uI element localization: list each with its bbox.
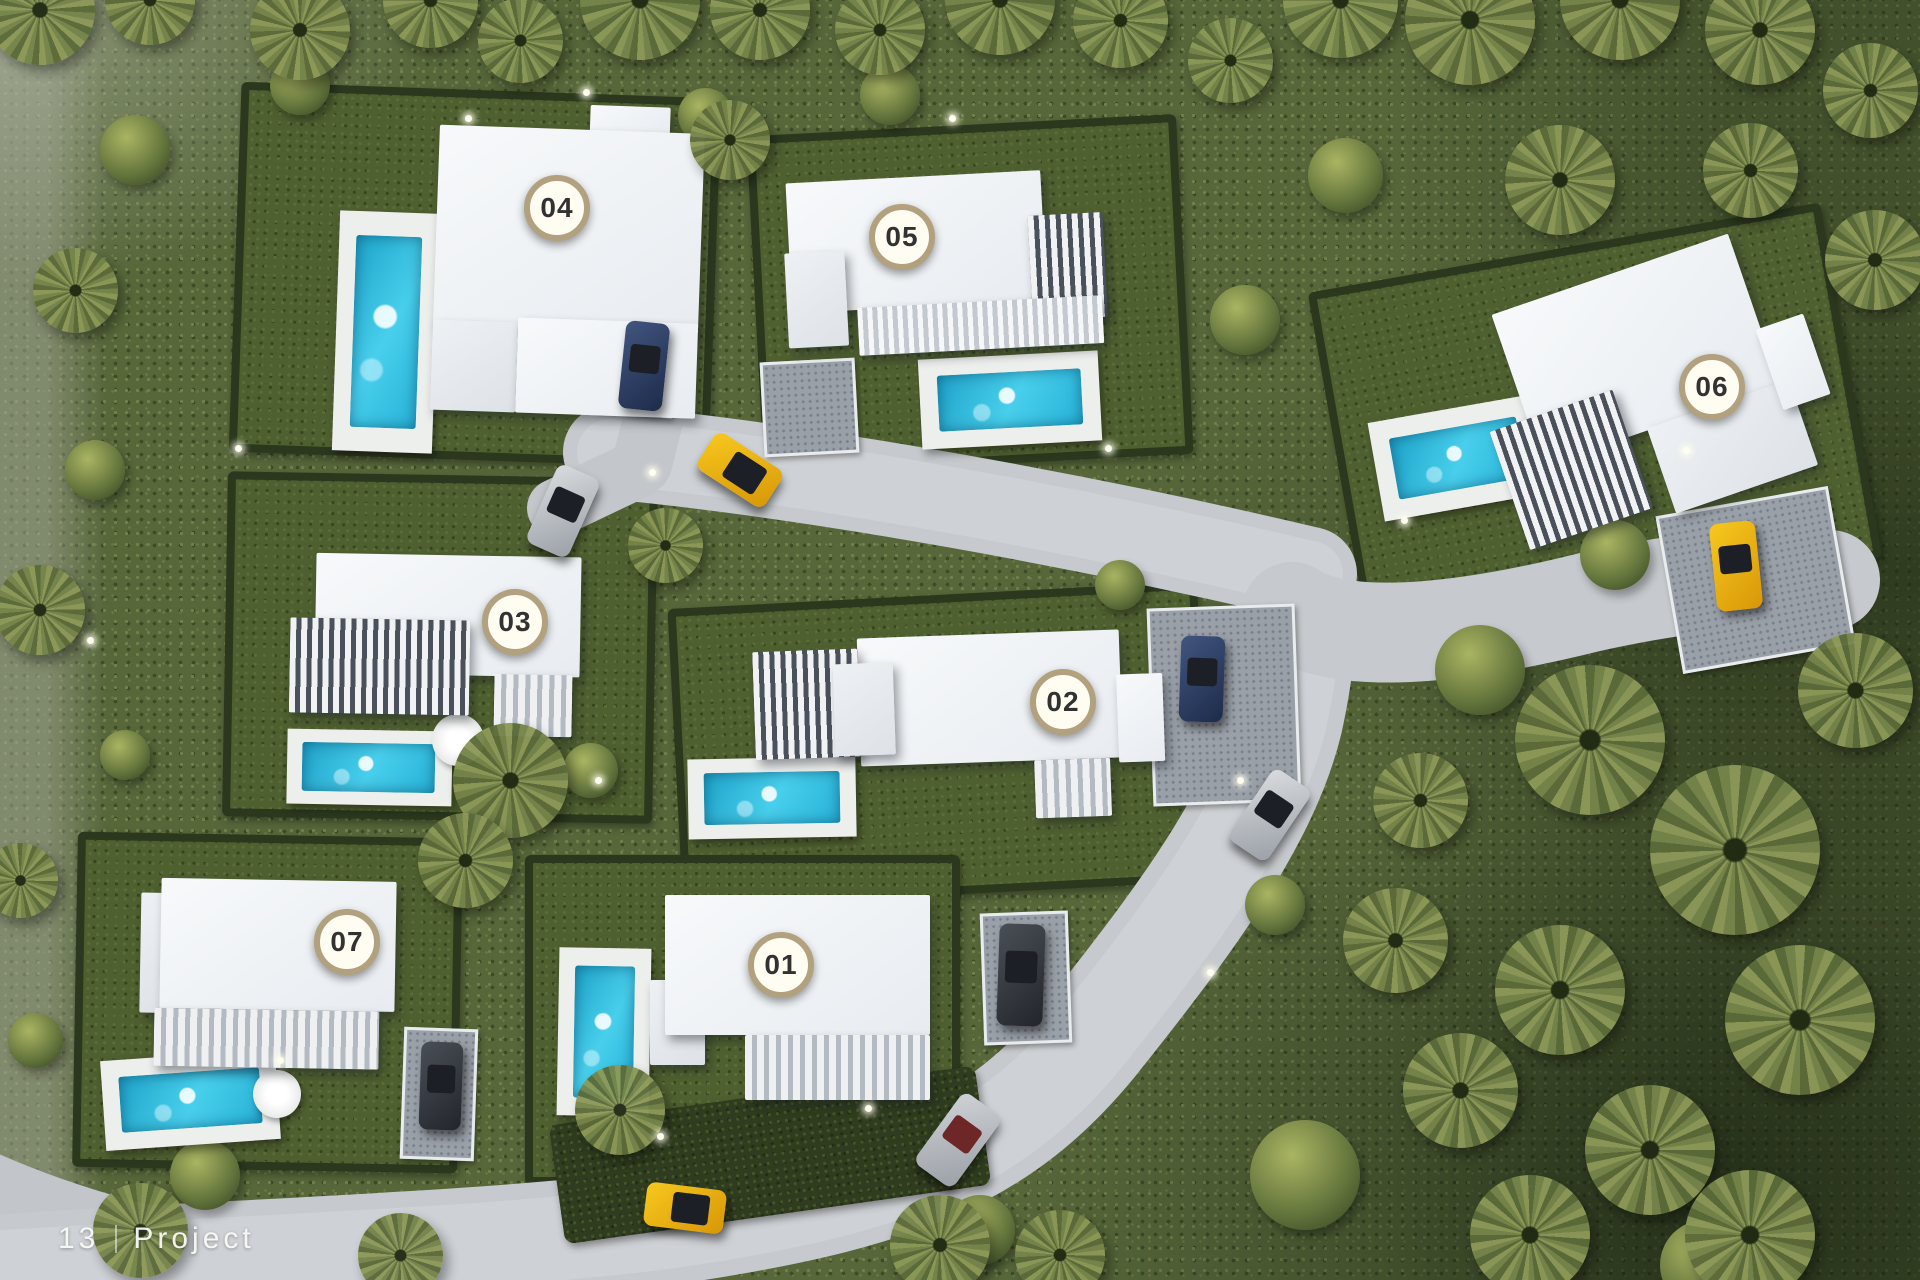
palm-tree [690,100,770,180]
garden-tree [170,1140,240,1210]
car-yellow-villa-06 [1709,520,1764,612]
garden-light [465,115,472,122]
villa-07-marker-label: 07 [330,926,363,958]
palm-tree [1343,888,1448,993]
villa-05-driveway [760,358,860,458]
villa-04-marker-label: 04 [540,192,573,224]
garden-tree [1095,560,1145,610]
villa-05-marker-label: 05 [885,221,918,253]
villa-04-pool-water [350,235,423,429]
garden-light [949,115,956,122]
garden-tree [65,440,125,500]
garden-light [595,777,602,784]
garden-light [583,89,590,96]
villa-04-marker[interactable]: 04 [524,175,590,241]
villa-05-building [780,157,1120,374]
site-plan: 01 02 03 04 05 06 07 13 Project [0,0,1920,1280]
palm-tree [478,0,563,83]
villa-07-marker[interactable]: 07 [314,909,380,975]
villa-03-marker[interactable]: 03 [482,589,548,655]
garden-light [1207,969,1214,976]
palm-tree [628,508,703,583]
palm-tree [418,813,513,908]
garden-light [649,469,656,476]
villa-03-building [288,542,591,747]
palm-tree [1373,753,1468,848]
villa-05-pool-water [937,368,1084,431]
car-dark-villa-07 [418,1041,463,1130]
villa-07-building [138,862,432,1087]
garden-light [1683,447,1690,454]
palm-tree [1798,633,1913,748]
garden-light [657,1133,664,1140]
palm-tree [1188,18,1273,103]
garden-tree [100,115,170,185]
villa-02-marker[interactable]: 02 [1030,669,1096,735]
page-footer: 13 Project [58,1222,255,1256]
palm-tree [1495,925,1625,1055]
palm-tree [1725,945,1875,1095]
villa-01-marker-label: 01 [764,949,797,981]
garden-tree [563,743,618,798]
page-number: 13 [58,1222,99,1256]
villa-01-building [650,885,950,1115]
garden-tree [100,730,150,780]
car-blue-villa-02 [1179,635,1226,722]
garden-tree [860,65,920,125]
villa-02-building [746,618,1173,843]
garden-light [865,1105,872,1112]
footer-section-label: Project [133,1222,254,1256]
car-blue-villa-04 [618,320,671,412]
palm-tree [1515,665,1665,815]
van-dark-villa-02 [996,923,1046,1027]
villa-05-marker[interactable]: 05 [869,204,935,270]
palm-tree [575,1065,665,1155]
palm-tree [1403,1033,1518,1148]
garden-tree [1250,1120,1360,1230]
villa-03-marker-label: 03 [498,606,531,638]
palm-tree [1585,1085,1715,1215]
garden-light [1401,517,1408,524]
palm-tree [33,248,118,333]
garden-light [277,1057,284,1064]
garden-tree [1435,625,1525,715]
garden-tree [1308,138,1383,213]
palm-tree [1703,123,1798,218]
footer-divider [115,1225,117,1253]
palm-tree [1650,765,1820,935]
garden-light [1105,445,1112,452]
villa-02-marker-label: 02 [1046,686,1079,718]
garden-light [87,637,94,644]
villa-01-marker[interactable]: 01 [748,932,814,998]
palm-tree [1823,43,1918,138]
garden-light [1237,777,1244,784]
palm-tree [1505,125,1615,235]
villa-06-marker[interactable]: 06 [1679,354,1745,420]
villa-03-pool-water [302,742,436,793]
garden-tree [8,1013,63,1068]
garden-light [235,445,242,452]
villa-06-marker-label: 06 [1695,371,1728,403]
garden-tree [1210,285,1280,355]
garden-tree [1245,875,1305,935]
palm-tree [1825,210,1920,310]
